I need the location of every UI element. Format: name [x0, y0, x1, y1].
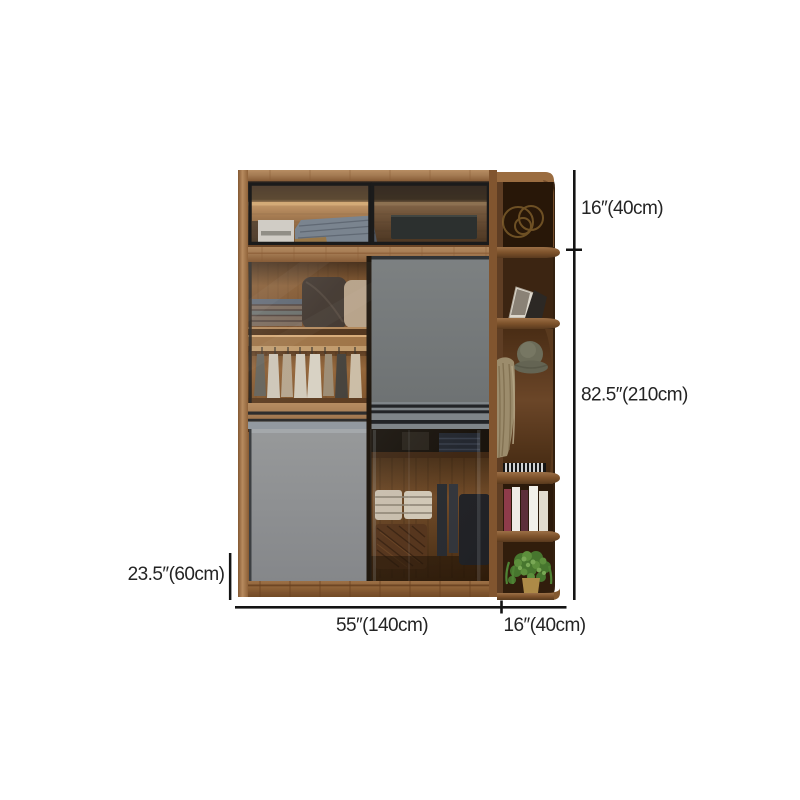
svg-text:23.5″(60cm): 23.5″(60cm)	[128, 564, 225, 585]
svg-text:16″(40cm): 16″(40cm)	[581, 198, 663, 219]
svg-text:55″(140cm): 55″(140cm)	[336, 615, 428, 636]
svg-text:82.5″(210cm): 82.5″(210cm)	[581, 385, 688, 406]
svg-text:16″(40cm): 16″(40cm)	[503, 615, 585, 636]
